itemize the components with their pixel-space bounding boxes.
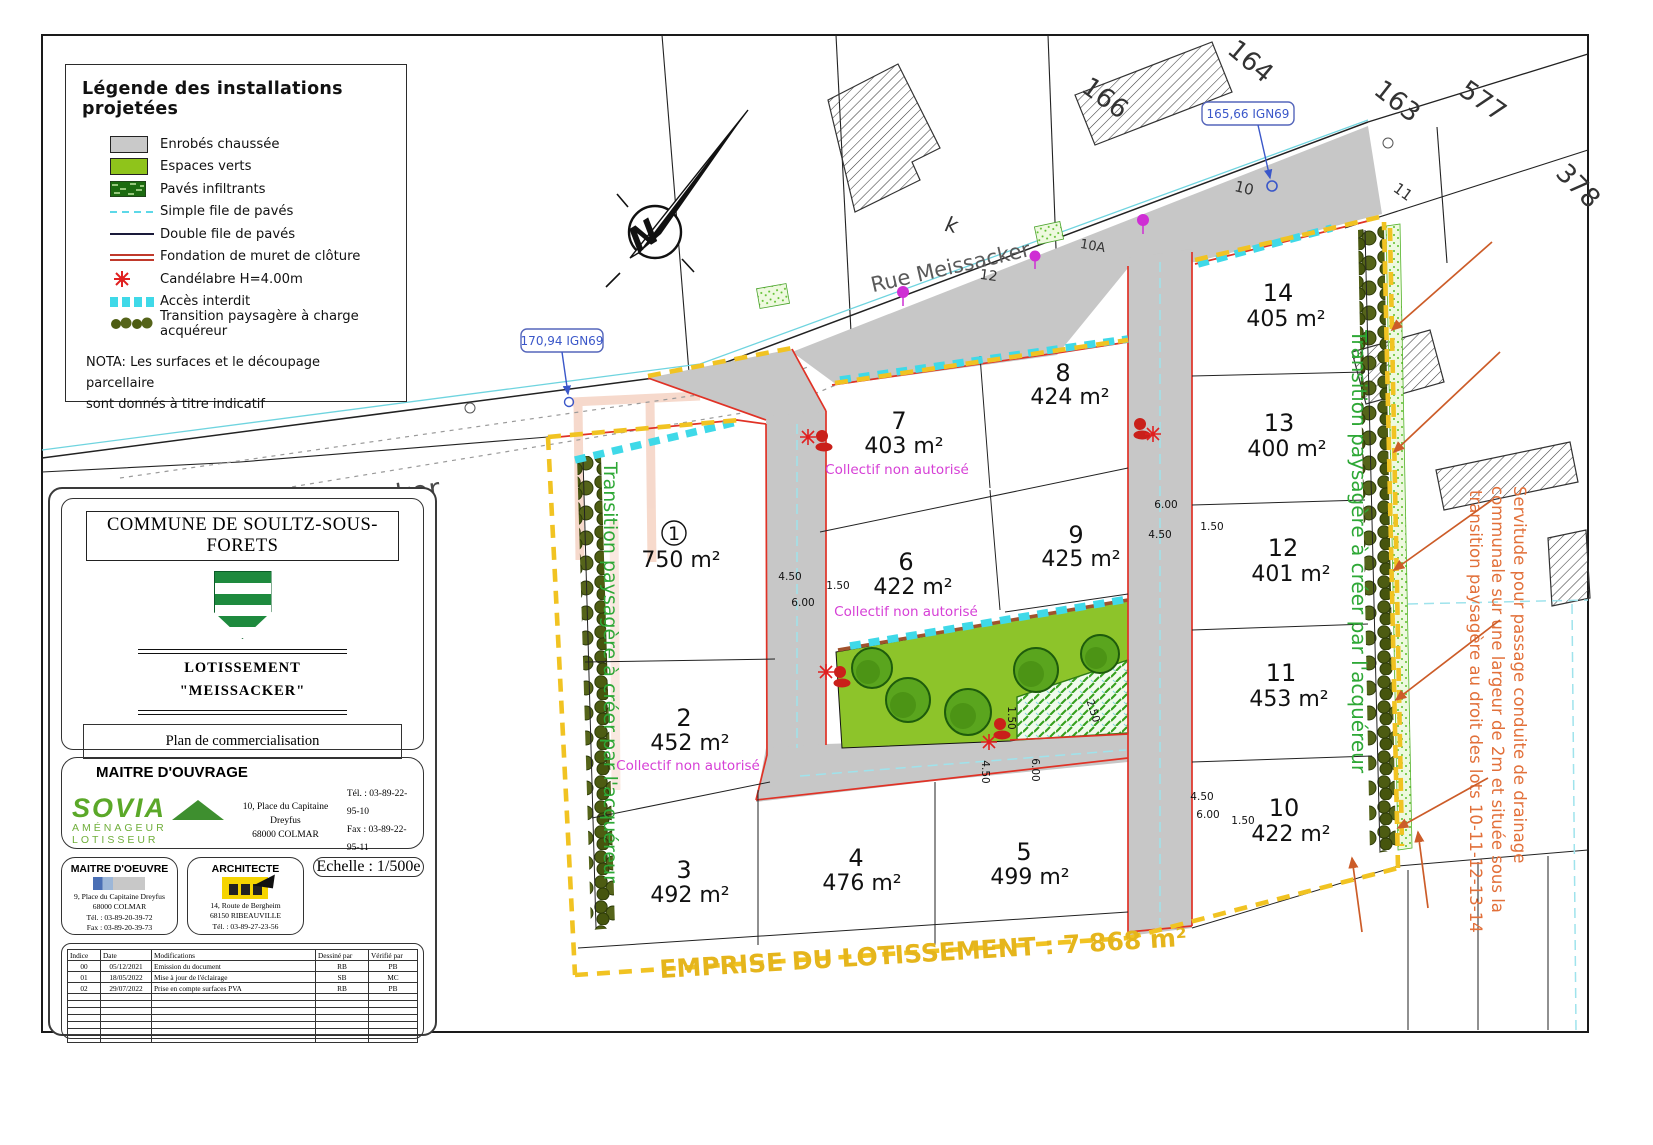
revision-row-empty <box>68 1029 418 1036</box>
svg-text:499 m²: 499 m² <box>990 865 1069 890</box>
tel: Tél. : 03-89-27-23-56 <box>188 922 303 932</box>
legend-item-label: Pavés infiltrants <box>160 182 266 197</box>
lot-5: 5 499 m² <box>990 838 1069 890</box>
fax: Fax : 03-89-20-39-73 <box>62 923 177 933</box>
elevation-marker-1: 170,94 IGN69 <box>521 329 604 407</box>
col-dessine: Dessiné par <box>316 950 369 961</box>
collectif-note-lot2: Collectif non autorisé <box>616 758 760 774</box>
svg-text:4: 4 <box>848 844 863 872</box>
svg-text:425 m²: 425 m² <box>1041 547 1120 572</box>
green-space-swatch-icon <box>110 158 148 175</box>
svg-text:6.00: 6.00 <box>1029 758 1041 781</box>
svg-text:750 m²: 750 m² <box>641 548 720 573</box>
svg-text:422 m²: 422 m² <box>1251 822 1330 847</box>
svg-text:378: 378 <box>1549 158 1605 214</box>
svg-text:476 m²: 476 m² <box>822 871 901 896</box>
lot-8: 8 424 m² <box>1030 359 1109 410</box>
maitre-ouvrage-box: MAITRE D'OUVRAGE SOVIA AMÉNAGEUR LOTISSE… <box>61 757 424 849</box>
emprise-label: EMPRISE DU LOTISSEMENT : 7 868 m² <box>659 923 1188 984</box>
revision-table: Indice Date Modifications Dessiné par Vé… <box>67 949 418 1043</box>
legend-item-label: Espaces verts <box>160 159 251 174</box>
tree-row-icon <box>110 316 156 332</box>
legend-item-label: Candélabre H=4.00m <box>160 272 303 287</box>
svg-text:422 m²: 422 m² <box>873 575 952 600</box>
legend-item-label: Transition paysagère à charge acquéreur <box>160 309 392 339</box>
elevation-label-1: 170,94 IGN69 <box>521 334 604 348</box>
col-verifie: Vérifié par <box>369 950 418 961</box>
lot-10: 10 422 m² <box>1251 794 1330 847</box>
svg-text:401 m²: 401 m² <box>1251 562 1330 587</box>
svg-text:6.00: 6.00 <box>1196 809 1219 821</box>
svg-text:2: 2 <box>676 704 691 732</box>
svg-text:13: 13 <box>1264 409 1295 437</box>
legend-item: Espaces verts <box>110 156 392 179</box>
north-arrow: N <box>606 110 748 287</box>
project-name: "MEISSACKER" <box>62 683 423 700</box>
scale-box: Echelle : 1/500e <box>313 857 424 877</box>
nota-line1: NOTA: Les surfaces et le découpage parce… <box>86 352 392 395</box>
transition-note-east: Transition paysagère à créer par l'acqué… <box>1347 329 1371 774</box>
legend-item: Candélabre H=4.00m <box>110 268 392 291</box>
maitre-oeuvre-logo <box>93 877 145 890</box>
svg-text:1.50: 1.50 <box>826 580 849 592</box>
elevation-label-2: 165,66 IGN69 <box>1207 107 1290 121</box>
architecte-logo <box>222 877 268 899</box>
address-line: 68000 COLMAR <box>238 828 333 842</box>
legend-item-label: Accès interdit <box>160 294 250 309</box>
lot-9: 9 425 m² <box>1041 521 1120 572</box>
address-line: 10, Place du Capitaine Dreyfus <box>238 800 333 829</box>
svg-text:10: 10 <box>1269 794 1300 822</box>
maitre-oeuvre-box: MAITRE D'OEUVRE 9, Place du Capitaine Dr… <box>61 857 178 935</box>
svg-text:6.00: 6.00 <box>1154 499 1177 511</box>
revision-table-box: Indice Date Modifications Dessiné par Vé… <box>61 943 424 1039</box>
legend-item: Double file de pavés <box>110 223 392 246</box>
svg-text:4.50: 4.50 <box>979 760 991 783</box>
divider <box>138 649 347 654</box>
revision-header-row: Indice Date Modifications Dessiné par Vé… <box>68 950 418 961</box>
address-line: 14, Route de Bergheim <box>188 901 303 911</box>
single-paver-line-icon <box>110 208 154 216</box>
svg-text:4.50: 4.50 <box>1190 791 1213 803</box>
svg-text:424 m²: 424 m² <box>1030 385 1109 410</box>
coat-of-arms <box>214 571 272 639</box>
svg-text:8: 8 <box>1055 359 1070 387</box>
svg-text:6.00: 6.00 <box>791 597 814 609</box>
cadastre-labels: 164 166 k 163 577 378 10 10A 12 11 <box>943 34 1606 285</box>
lot-12: 12 401 m² <box>1251 534 1330 587</box>
scale-label: Echelle : 1/500e <box>317 858 421 876</box>
lot-11: 11 453 m² <box>1249 659 1328 712</box>
svg-text:12: 12 <box>979 267 999 285</box>
servitude-annotation: Servitude pour passage conduite de drain… <box>1466 486 1529 933</box>
maitre-oeuvre-heading: MAITRE D'OEUVRE <box>62 863 177 875</box>
sovia-tagline: AMÉNAGEUR LOTISSEUR <box>72 822 224 846</box>
asphalt-swatch-icon <box>110 136 148 153</box>
revision-row: 02 29/07/2022 Prise en compte surfaces P… <box>68 983 418 994</box>
address-line: 9, Place du Capitaine Dreyfus <box>62 892 177 902</box>
revision-row-empty <box>68 1036 418 1043</box>
commune-title: COMMUNE DE SOULTZ-SOUS-FORETS <box>86 511 398 561</box>
project-title-box: COMMUNE DE SOULTZ-SOUS-FORETS LOTISSEMEN… <box>61 498 424 750</box>
svg-text:9: 9 <box>1068 521 1083 549</box>
svg-text:3: 3 <box>676 856 691 884</box>
sovia-logo: SOVIA <box>72 796 166 820</box>
nota-line2: sont donnés à titre indicatif <box>86 394 392 415</box>
svg-text:7: 7 <box>891 407 906 435</box>
svg-text:405 m²: 405 m² <box>1246 307 1325 332</box>
maitre-oeuvre-address: 9, Place du Capitaine Dreyfus 68000 COLM… <box>62 892 177 933</box>
svg-text:transition paysagère au droit: transition paysagère au droit des lots 1… <box>1466 490 1485 933</box>
lot-3: 3 492 m² <box>650 856 729 908</box>
svg-text:1.50: 1.50 <box>1200 521 1223 533</box>
lot-6: 6 422 m² Collectif non autorisé <box>834 548 978 620</box>
lot-2: 2 452 m² Collectif non autorisé <box>616 704 760 774</box>
maitre-ouvrage-address: 10, Place du Capitaine Dreyfus 68000 COL… <box>238 800 333 843</box>
svg-text:1: 1 <box>668 523 680 545</box>
document-title: Plan de commercialisation <box>83 724 403 759</box>
svg-text:1.50: 1.50 <box>1005 706 1017 729</box>
mountain-logo-icon <box>172 800 224 820</box>
pavers-swatch-icon <box>110 181 146 197</box>
svg-text:577: 577 <box>1454 75 1512 128</box>
revision-row: 00 05/12/2021 Emission du document RB PB <box>68 961 418 972</box>
legend-item: Transition paysagère à charge acquéreur <box>110 313 392 336</box>
revision-row: 01 18/05/2022 Mise à jour de l'éclairage… <box>68 972 418 983</box>
revision-row-empty <box>68 1015 418 1022</box>
address-line: 68150 RIBEAUVILLE <box>188 911 303 921</box>
title-block: COMMUNE DE SOULTZ-SOUS-FORETS LOTISSEMEN… <box>48 487 437 1036</box>
legend-item: Fondation de muret de clôture <box>110 246 392 269</box>
collectif-note-lot7: Collectif non autorisé <box>825 462 969 478</box>
svg-text:11: 11 <box>1266 659 1297 687</box>
tel: Tél. : 03-89-22-95-10 <box>347 785 413 821</box>
lot-7: 7 403 m² Collectif non autorisé <box>825 407 969 478</box>
legend-item-label: Simple file de pavés <box>160 204 293 219</box>
svg-text:5: 5 <box>1016 838 1031 866</box>
lot-4: 4 476 m² <box>822 844 901 896</box>
maitre-ouvrage-heading: MAITRE D'OUVRAGE <box>96 764 413 781</box>
svg-text:164: 164 <box>1221 34 1278 89</box>
svg-text:6: 6 <box>898 548 913 576</box>
svg-text:12: 12 <box>1268 534 1299 562</box>
legend-item: Enrobés chaussée <box>110 133 392 156</box>
legend-item-label: Fondation de muret de clôture <box>160 249 360 264</box>
fax: Fax : 03-89-22-95-11 <box>347 821 413 857</box>
svg-text:403 m²: 403 m² <box>864 434 943 459</box>
lot-13: 13 400 m² <box>1247 409 1326 462</box>
plan-sheet: 170,94 IGN69 165,66 IGN69 N Rue Meissack… <box>0 0 1653 1145</box>
legend-item-label: Double file de pavés <box>160 227 295 242</box>
lot-14: 14 405 m² <box>1246 279 1325 332</box>
legend-nota: NOTA: Les surfaces et le découpage parce… <box>86 352 392 416</box>
revision-row-empty <box>68 994 418 1001</box>
svg-text:Servitude pour passage conduit: Servitude pour passage conduite de drain… <box>1510 486 1529 863</box>
architecte-box: ARCHITECTE 14, Route de Bergheim 68150 R… <box>187 857 304 935</box>
svg-text:400 m²: 400 m² <box>1247 437 1326 462</box>
svg-text:1.50: 1.50 <box>1231 815 1254 827</box>
svg-text:452 m²: 452 m² <box>650 731 729 756</box>
legend-item: Simple file de pavés <box>110 201 392 224</box>
revision-row-empty <box>68 1008 418 1015</box>
legend-item: Pavés infiltrants <box>110 178 392 201</box>
access-forbidden-icon <box>110 296 156 308</box>
transition-note-west: Transition paysagère à créer par l'acqué… <box>599 461 621 883</box>
candelabra-icon <box>110 269 134 289</box>
project-type: LOTISSEMENT <box>62 660 423 677</box>
svg-text:k: k <box>943 212 961 238</box>
wall-foundation-icon <box>110 252 154 262</box>
legend-item-label: Enrobés chaussée <box>160 137 279 152</box>
maitre-ouvrage-phones: Tél. : 03-89-22-95-10 Fax : 03-89-22-95-… <box>347 785 413 857</box>
svg-text:4.50: 4.50 <box>778 571 801 583</box>
col-modifications: Modifications <box>152 950 316 961</box>
svg-text:4.50: 4.50 <box>1148 529 1171 541</box>
collectif-note-lot6: Collectif non autorisé <box>834 604 978 620</box>
architecte-heading: ARCHITECTE <box>188 863 303 875</box>
svg-text:14: 14 <box>1263 279 1294 307</box>
divider <box>138 710 347 715</box>
svg-text:453 m²: 453 m² <box>1249 687 1328 712</box>
tel: Tél. : 03-89-20-39-72 <box>62 913 177 923</box>
architecte-address: 14, Route de Bergheim 68150 RIBEAUVILLE … <box>188 901 303 932</box>
col-indice: Indice <box>68 950 101 961</box>
svg-text:163: 163 <box>1368 75 1426 129</box>
col-date: Date <box>101 950 152 961</box>
revision-row-empty <box>68 1022 418 1029</box>
svg-text:11: 11 <box>1390 179 1416 205</box>
address-line: 68000 COLMAR <box>62 902 177 912</box>
svg-text:communale sur une largeur de 2: communale sur une largeur de 2m et situé… <box>1488 486 1507 913</box>
svg-text:492 m²: 492 m² <box>650 883 729 908</box>
legend-title: Légende des installations projetées <box>82 79 392 119</box>
legend-panel: Légende des installations projetées Enro… <box>65 64 407 402</box>
double-paver-line-icon <box>110 230 154 238</box>
revision-row-empty <box>68 1001 418 1008</box>
